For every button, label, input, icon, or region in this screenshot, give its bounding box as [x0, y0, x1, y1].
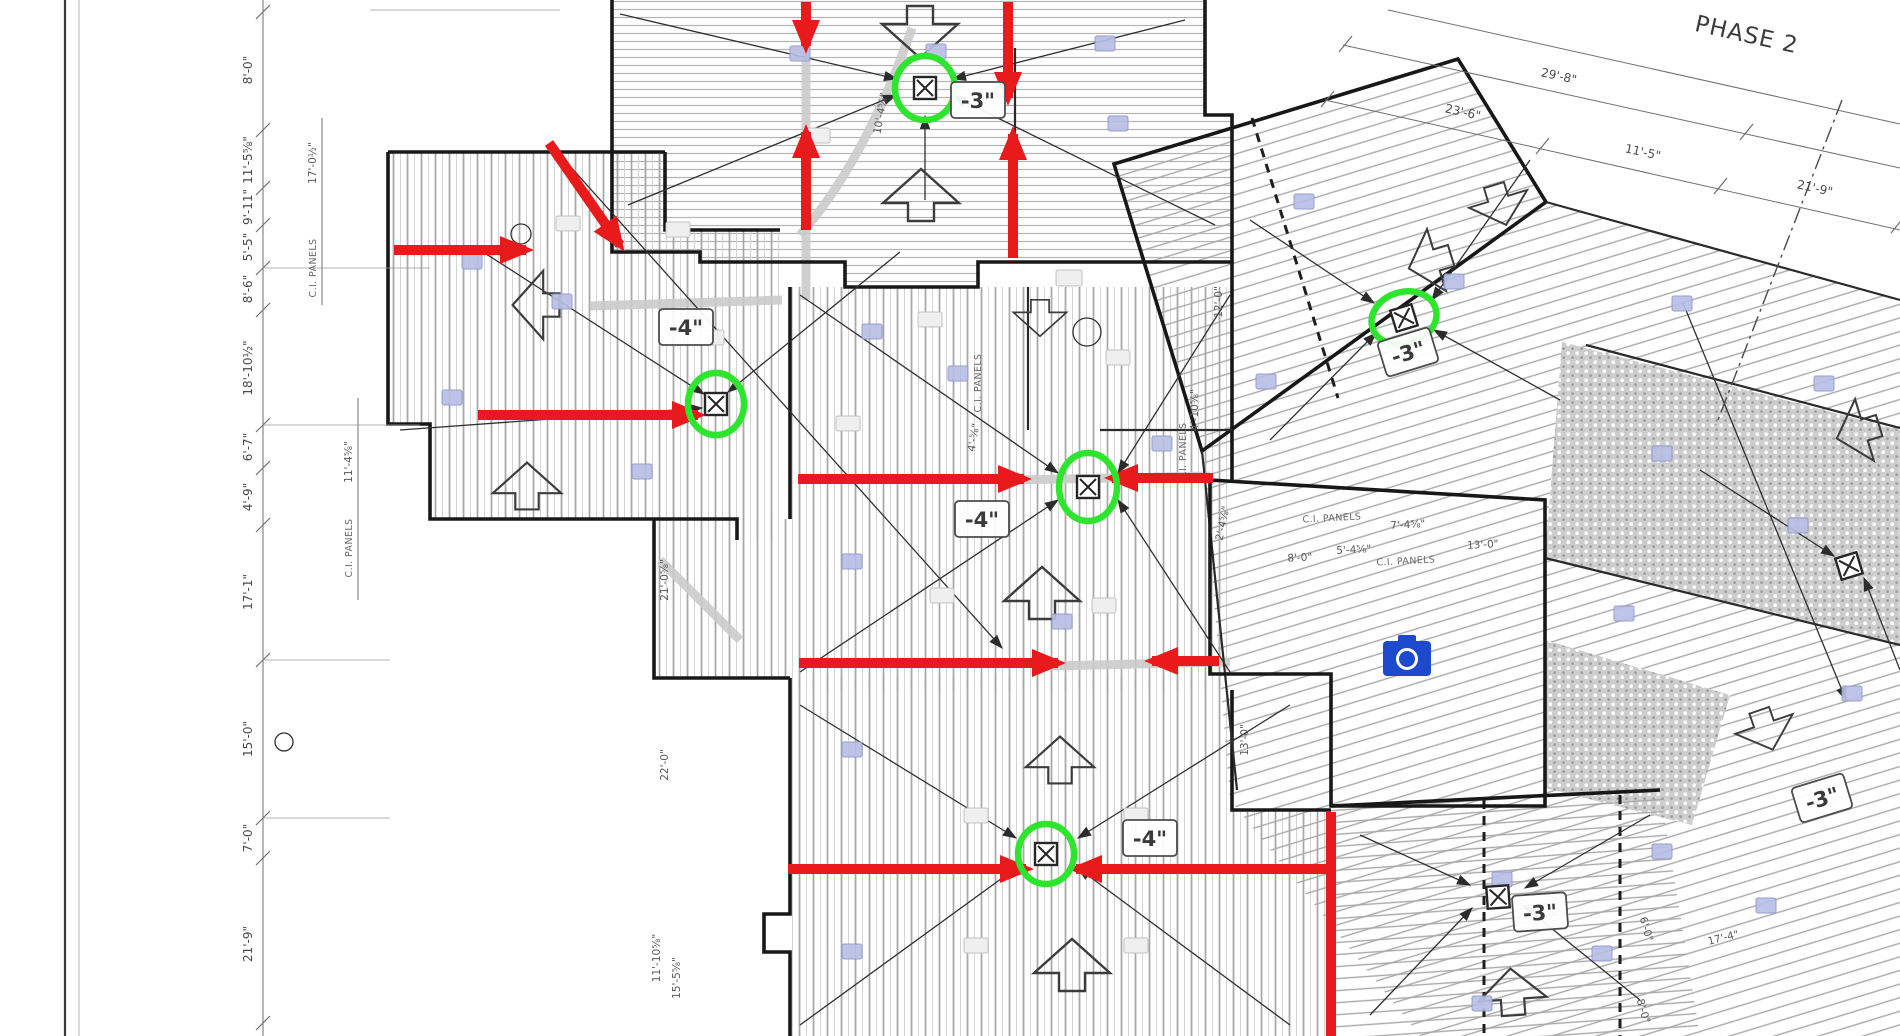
drain-depth-label[interactable]: -4": [955, 501, 1009, 537]
drain-depth-label[interactable]: -3": [951, 82, 1005, 118]
roof-drain: [1077, 476, 1099, 498]
roof-drain: [1835, 552, 1862, 579]
roof-drain: [705, 393, 727, 415]
dim-label: 4'-10⅝": [1189, 389, 1201, 431]
drain-depth-text: -3": [1522, 900, 1558, 926]
drain-depth-text: -4": [965, 508, 999, 532]
sheet-edge: [65, 0, 79, 1036]
dim-label: 5'-4⅝": [1336, 543, 1372, 557]
dim-label: 7'-0": [241, 824, 255, 852]
dim-label: 15'-0": [241, 721, 255, 757]
drain-depth-label[interactable]: -4": [1123, 820, 1177, 856]
dim-label: 6'-7": [241, 433, 255, 461]
panels-label: C.I. PANELS: [973, 354, 984, 413]
dim-label: 11'-5": [1624, 141, 1662, 162]
dim-label: 5'-5": [241, 233, 255, 261]
dim-label: 29'-8": [1540, 65, 1578, 86]
dim-label: 21'-9": [241, 926, 255, 962]
drain-depth-label[interactable]: -3": [1512, 892, 1568, 932]
roof-drain: [1035, 843, 1057, 865]
roof-drain: [1390, 304, 1417, 331]
dim-label: 12'-0": [1213, 286, 1225, 318]
drain-depth-text: -4": [1133, 827, 1167, 851]
dim-label: 11'-10⅝": [651, 934, 663, 982]
panels-label: C.I. PANELS: [1178, 423, 1189, 482]
dim-label: 4'-9": [241, 483, 255, 511]
dim-label: 8'-0": [241, 56, 255, 84]
dim-label: 11'-4⅝": [343, 441, 355, 483]
dim-label: 7'-4⅝": [1390, 518, 1426, 532]
dim-label: 22'-0": [659, 749, 671, 781]
dim-label: 18'-10½": [241, 340, 255, 395]
drain-depth-text: -4": [669, 316, 703, 340]
roof-drain: [914, 77, 936, 99]
dim-label: 17'-1": [241, 574, 255, 610]
panels-label: C.I. PANELS: [308, 239, 319, 298]
dim-label: 9'-11": [241, 189, 255, 225]
drain-depth-text: -3": [961, 89, 995, 113]
phase-label: PHASE 2: [1692, 11, 1800, 59]
panels-label: C.I. PANELS: [344, 519, 355, 578]
dim-label: 15'-5⅝": [671, 957, 683, 999]
dim-label: 8'-0": [1287, 551, 1312, 564]
dim-label: 21'-9": [1796, 177, 1834, 198]
roof-plan-canvas: 8'-0" 11'-5⅝" 9'-11" 5'-5" 8'-6" 18'-10½…: [0, 0, 1900, 1036]
camera-icon[interactable]: [1383, 635, 1431, 676]
dim-label: 13'-0": [1239, 724, 1251, 756]
dim-label: 13'-0": [1467, 538, 1499, 552]
drain-depth-label[interactable]: -4": [659, 309, 713, 345]
dim-label: 17'-0½": [307, 142, 319, 184]
dim-label: 11'-5⅝": [241, 136, 255, 184]
dim-label: 8'-6": [241, 275, 255, 303]
roof-drain: [1486, 885, 1509, 908]
dim-label: 21'-0⅝": [659, 559, 671, 601]
